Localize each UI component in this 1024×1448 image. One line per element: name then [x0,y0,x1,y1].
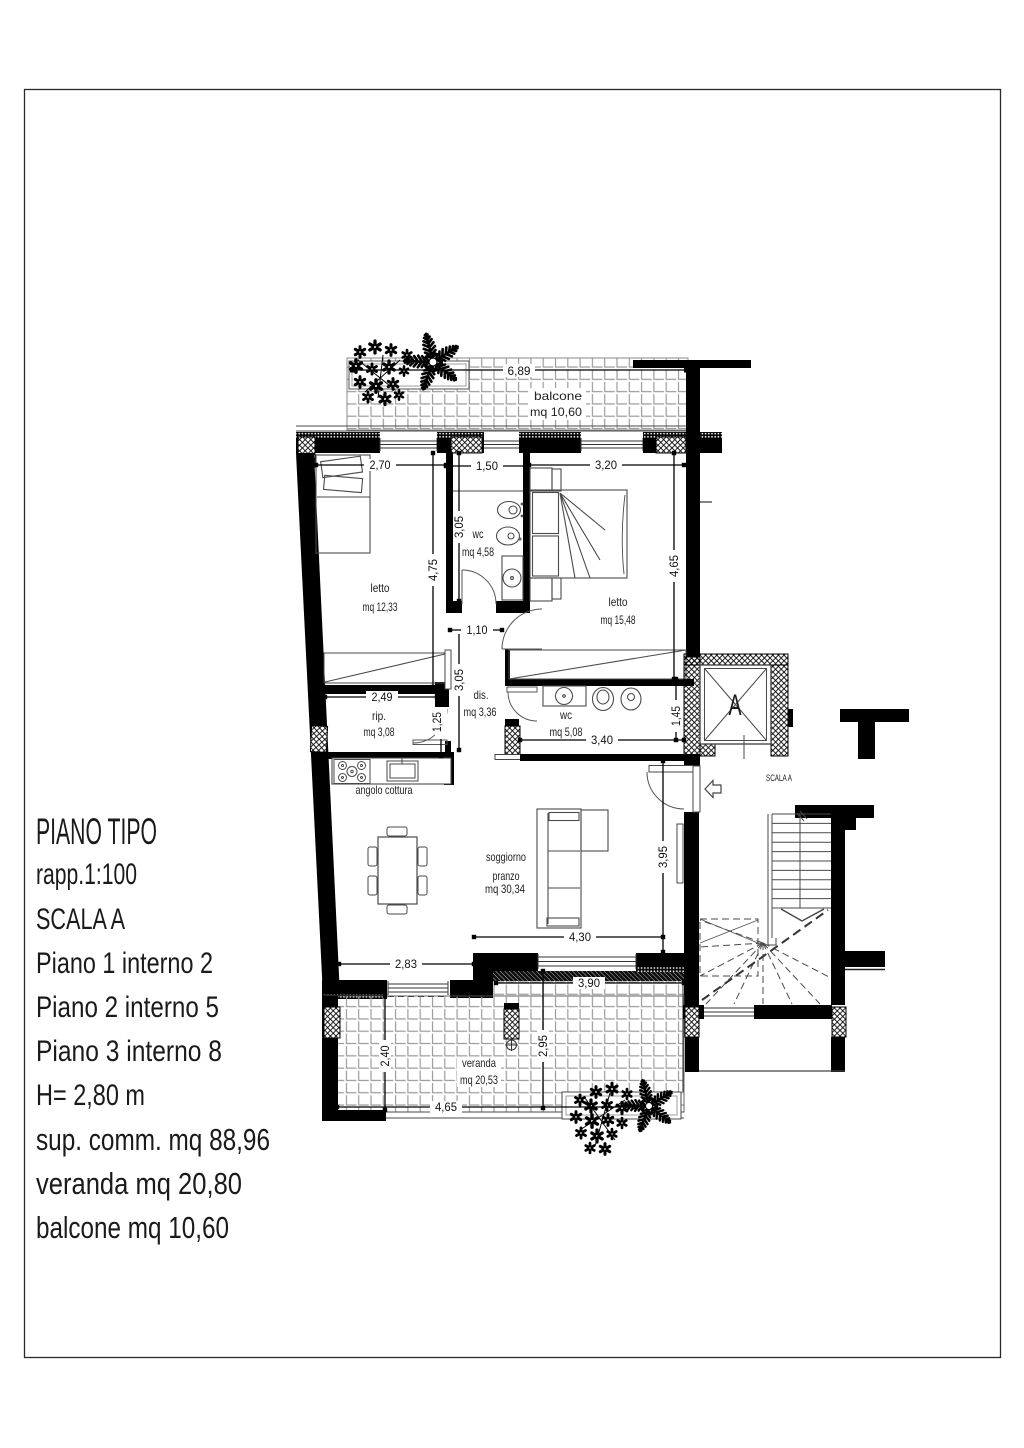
svg-text:mq 3,08: mq 3,08 [364,725,395,739]
svg-text:mq 5,08: mq 5,08 [550,725,583,739]
svg-text:A: A [729,689,742,722]
svg-text:2,83: 2,83 [395,959,417,971]
svg-text:balcone mq 10,60: balcone mq 10,60 [36,1210,229,1245]
svg-text:wc: wc [472,527,484,541]
svg-text:3,20: 3,20 [595,460,617,472]
svg-text:3,05: 3,05 [454,516,466,538]
svg-text:rapp.1:100: rapp.1:100 [36,858,137,891]
svg-text:4,30: 4,30 [569,932,591,944]
svg-text:Piano 3 interno 8: Piano 3 interno 8 [36,1035,222,1068]
svg-text:wc: wc [559,708,572,722]
svg-text:mq 20,53: mq 20,53 [460,1073,498,1087]
svg-text:1,10: 1,10 [467,625,488,637]
svg-text:4,65: 4,65 [435,1102,457,1114]
svg-text:2,40: 2,40 [380,1046,392,1067]
svg-text:1,25: 1,25 [432,712,444,732]
svg-text:sup. comm. mq 88,96: sup. comm. mq 88,96 [36,1122,270,1157]
svg-text:1,45: 1,45 [671,706,683,726]
svg-text:3,90: 3,90 [578,978,600,990]
svg-text:rip.: rip. [372,709,386,723]
svg-text:SCALA A: SCALA A [766,773,792,784]
svg-text:2,49: 2,49 [372,692,393,704]
svg-text:6,89: 6,89 [508,366,531,378]
svg-text:H= 2,80 m: H= 2,80 m [36,1079,145,1112]
svg-text:mq 4,58: mq 4,58 [462,545,494,559]
svg-text:veranda: veranda [462,1056,496,1070]
svg-text:soggiorno: soggiorno [486,850,526,864]
svg-text:dis.: dis. [474,688,489,702]
svg-text:4,65: 4,65 [669,555,681,577]
svg-text:mq 3,36: mq 3,36 [464,705,497,719]
svg-text:3,05: 3,05 [454,669,466,691]
svg-text:veranda mq 20,80: veranda mq 20,80 [36,1166,242,1201]
svg-text:mq 15,48: mq 15,48 [601,613,636,627]
svg-text:letto: letto [371,581,390,595]
svg-text:SCALA A: SCALA A [36,903,125,936]
svg-text:mq 10,60: mq 10,60 [530,405,582,419]
svg-text:Piano 1 interno 2: Piano 1 interno 2 [36,947,213,980]
svg-text:mq 12,33: mq 12,33 [363,600,398,614]
svg-text:3,40: 3,40 [591,735,613,747]
svg-text:PIANO TIPO: PIANO TIPO [36,811,157,852]
svg-text:angolo cottura: angolo cottura [356,783,413,797]
svg-text:1,50: 1,50 [476,461,498,473]
svg-text:balcone: balcone [534,389,582,403]
svg-text:mq 30,34: mq 30,34 [485,882,525,896]
svg-text:Piano 2 interno 5: Piano 2 interno 5 [36,991,219,1024]
svg-text:2,95: 2,95 [538,1035,550,1057]
svg-text:pranzo: pranzo [493,869,520,883]
svg-text:3,95: 3,95 [658,846,670,868]
svg-text:4,75: 4,75 [428,559,440,581]
svg-text:letto: letto [609,595,628,609]
svg-text:2,70: 2,70 [370,460,391,472]
